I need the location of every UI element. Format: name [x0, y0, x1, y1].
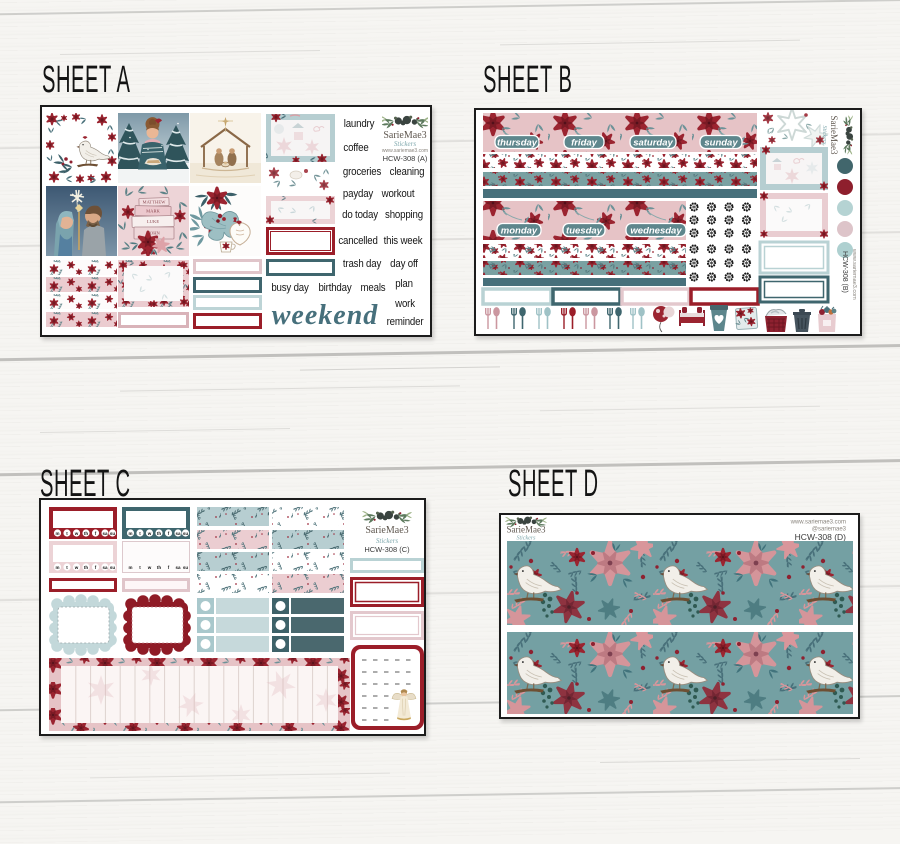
svg-text:HCW-308 (D): HCW-308 (D)	[795, 532, 846, 542]
svg-text:su: su	[110, 565, 116, 570]
svg-text:w: w	[147, 565, 152, 570]
svg-text:wednesday: wednesday	[630, 226, 682, 237]
svg-text:su: su	[183, 531, 189, 536]
svg-text:HCW-308 (C): HCW-308 (C)	[364, 545, 410, 554]
svg-text:www.sariemae3.com: www.sariemae3.com	[851, 248, 857, 300]
svg-text:SarieMae3: SarieMae3	[365, 525, 408, 536]
svg-text:w: w	[74, 565, 79, 570]
svg-text:sunday: sunday	[704, 138, 738, 149]
svg-text:m: m	[55, 531, 59, 536]
svg-text:m: m	[128, 565, 132, 570]
svg-text:sa: sa	[175, 565, 181, 570]
svg-text:Stickers: Stickers	[821, 126, 827, 146]
svg-text:th: th	[84, 531, 88, 536]
svg-text:sa: sa	[102, 531, 108, 536]
svg-text:www.sariemae3.com: www.sariemae3.com	[790, 520, 846, 526]
svg-text:MARK: MARK	[146, 209, 160, 214]
svg-text:friday: friday	[571, 138, 598, 149]
svg-text:thursday: thursday	[497, 138, 538, 149]
svg-text:th: th	[84, 565, 88, 570]
svg-text:SarieMae3: SarieMae3	[829, 116, 839, 155]
svg-text:HCW-308 (B): HCW-308 (B)	[841, 251, 848, 293]
svg-text:w: w	[74, 531, 79, 536]
svg-text:m: m	[55, 565, 59, 570]
svg-text:sa: sa	[102, 565, 108, 570]
svg-text:saturday: saturday	[633, 138, 673, 149]
svg-text:sa: sa	[175, 531, 181, 536]
svg-text:su: su	[110, 531, 116, 536]
svg-text:th: th	[157, 531, 161, 536]
svg-text:tuesday: tuesday	[566, 226, 603, 237]
svg-text:su: su	[183, 565, 189, 570]
svg-text:MATTHEW: MATTHEW	[143, 200, 167, 205]
svg-text:Stickers: Stickers	[517, 536, 537, 542]
svg-text:m: m	[128, 531, 132, 536]
svg-text:w: w	[147, 531, 152, 536]
svg-text:Stickers: Stickers	[376, 537, 398, 545]
svg-text:monday: monday	[501, 226, 538, 237]
svg-text:SarieMae3: SarieMae3	[507, 525, 546, 535]
svg-text:th: th	[157, 565, 161, 570]
svg-text:LUKE: LUKE	[147, 219, 159, 224]
